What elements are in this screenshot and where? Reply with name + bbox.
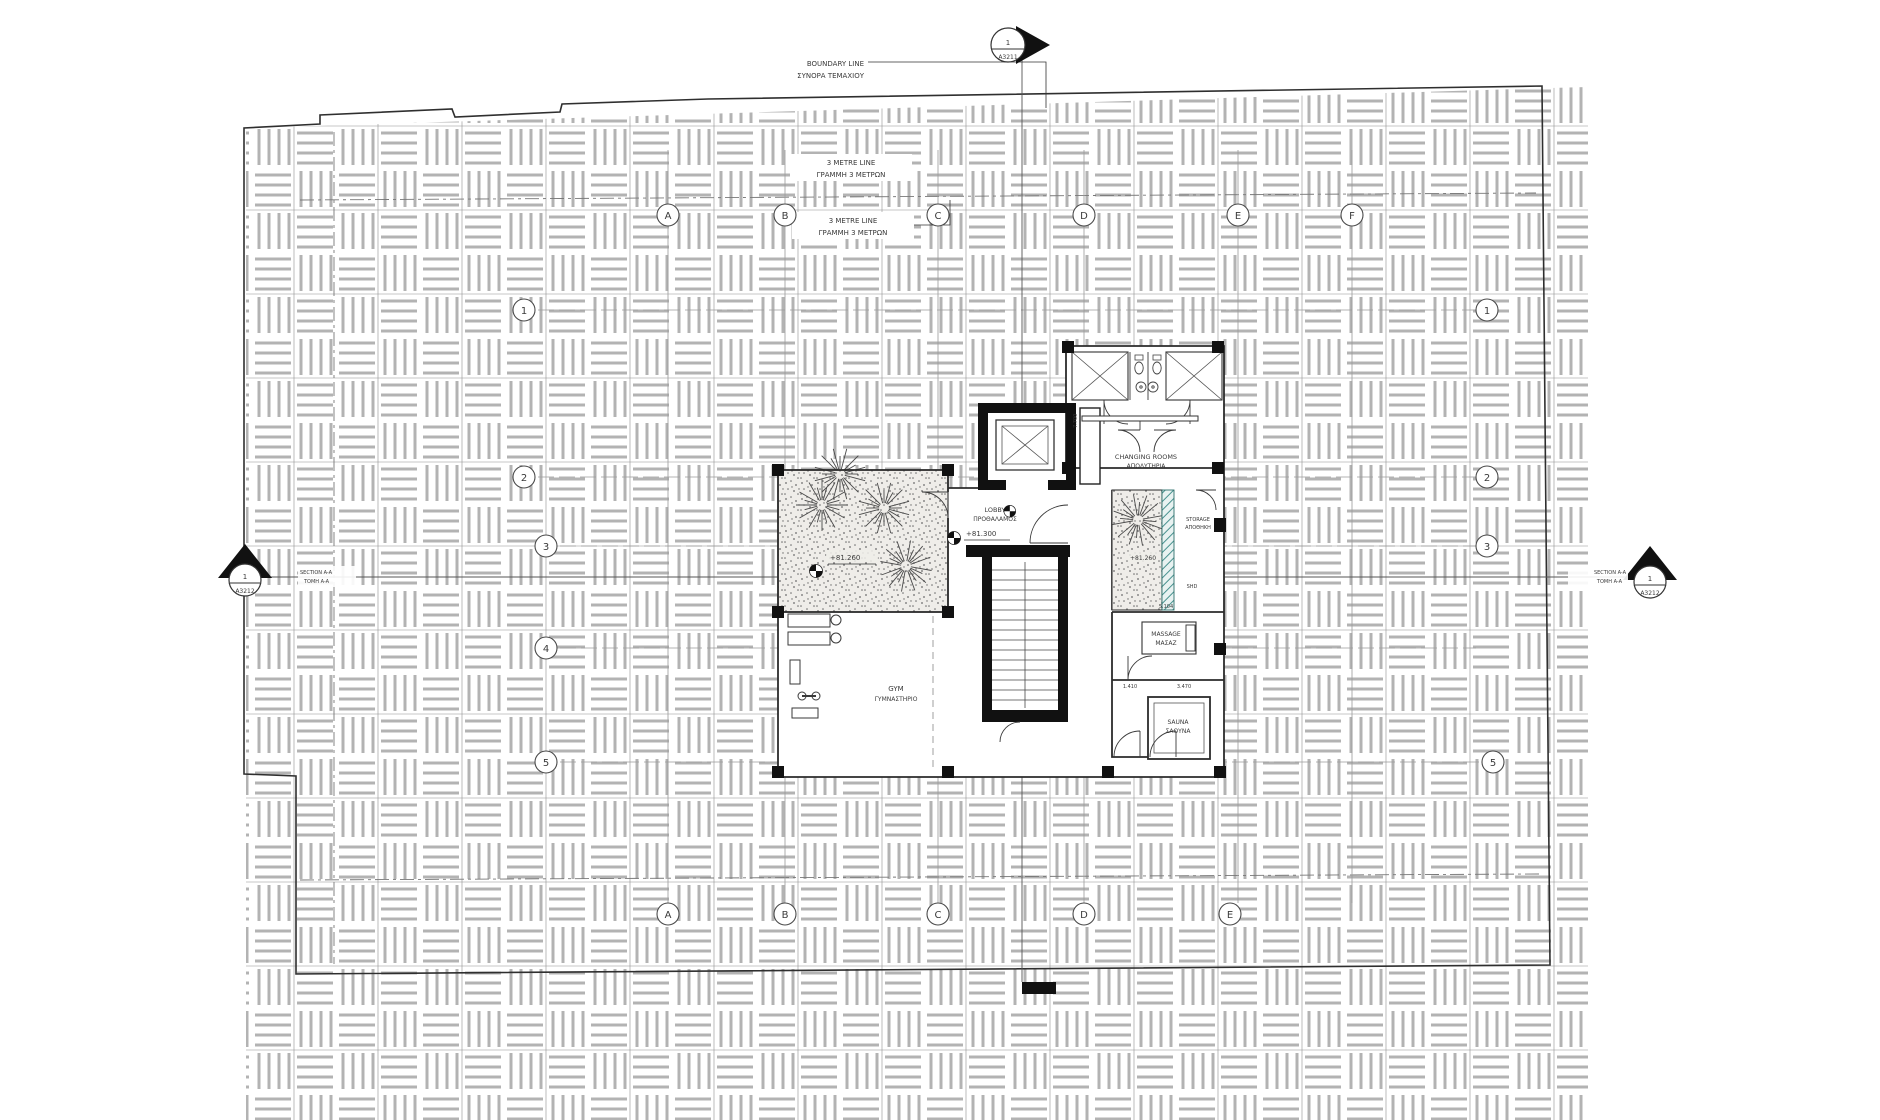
level-marker-icon: [948, 532, 961, 545]
grid-bubble-D-bottom: D: [1073, 903, 1095, 925]
svg-text:5: 5: [543, 758, 549, 769]
floor-plan-svg: BOUNDARY LINE ΣΥΝΟΡΑ ΤΕΜΑΧΙΟΥ 3 METRE LI…: [0, 0, 1880, 1120]
dim-text: 7.700: [1073, 414, 1079, 428]
section-marker-right-sheet: A3212: [1640, 590, 1660, 597]
section-marker-top: 1 A3211: [991, 26, 1050, 64]
dim-text: 5.104: [1159, 604, 1173, 610]
grid-bubble-C-top: C: [927, 204, 949, 226]
grid-bubble-1-right: 1: [1476, 299, 1498, 321]
grid-bubble-3-left: 3: [535, 535, 557, 557]
changing-label-gr: ΑΠΟΔΥΤΗΡΙΑ: [1127, 463, 1167, 470]
grid-bubble-2-left: 2: [513, 466, 535, 488]
grid-bubble-3-right: 3: [1476, 535, 1498, 557]
massage-label-gr: ΜΑΣΑΖ: [1155, 640, 1176, 647]
section-marker-left-sheet: A3212: [235, 588, 255, 595]
planter-level-text: +81.260: [1130, 555, 1156, 562]
svg-text:D: D: [1080, 211, 1088, 222]
section-line-end-bar: [1022, 982, 1056, 994]
boundary-label-gr: ΣΥΝΟΡΑ ΤΕΜΑΧΙΟΥ: [797, 72, 865, 80]
storage-label-en: STORAGE: [1186, 517, 1210, 523]
section-label-left-gr: ΤΟΜΗ A-A: [303, 579, 330, 585]
grid-bubble-E-top: E: [1227, 204, 1249, 226]
section-marker-top-num: 1: [1006, 39, 1010, 47]
terrace-level-text: +81.260: [830, 554, 860, 562]
svg-text:A: A: [665, 211, 672, 222]
svg-text:1: 1: [1484, 306, 1490, 317]
section-marker-right-num: 1: [1648, 575, 1652, 583]
changing-label-en: CHANGING ROOMS: [1115, 453, 1177, 461]
grid-bubble-A-top: A: [657, 204, 679, 226]
svg-text:3: 3: [1484, 542, 1490, 553]
grid-bubble-D-top: D: [1073, 204, 1095, 226]
grid-bubble-1-left: 1: [513, 299, 535, 321]
svg-text:C: C: [935, 910, 942, 921]
grid-bubble-B-top: B: [774, 204, 796, 226]
section-label-right-en: SECTION A-A: [1594, 570, 1627, 576]
svg-text:F: F: [1349, 211, 1355, 222]
massage-label-en: MASSAGE: [1151, 631, 1181, 638]
gym-label-en: GYM: [888, 685, 903, 693]
shd-label: SHD: [1187, 584, 1198, 590]
svg-text:1: 1: [521, 306, 527, 317]
metre-label-1-en: 3 METRE LINE: [827, 159, 876, 167]
svg-text:E: E: [1227, 910, 1233, 921]
metre-label-2-en: 3 METRE LINE: [829, 217, 878, 225]
dim-text: 3.470: [1177, 684, 1191, 690]
section-label-right-gr: ΤΟΜΗ A-A: [1596, 579, 1623, 585]
svg-text:4: 4: [543, 644, 549, 655]
svg-text:C: C: [935, 211, 942, 222]
svg-text:3: 3: [543, 542, 549, 553]
metre-label-1-gr: ΓΡΑΜΜΗ 3 ΜΕΤΡΩΝ: [817, 171, 886, 179]
storage-label-gr: ΑΠΟΘΗΚΗ: [1185, 525, 1211, 531]
lobby-label-en: LOBBY: [984, 506, 1005, 514]
section-marker-left-num: 1: [243, 573, 247, 581]
teal-hatched-wall: [1162, 490, 1174, 610]
section-label-left-en: SECTION A-A: [300, 570, 333, 576]
metre-label-2-gr: ΓΡΑΜΜΗ 3 ΜΕΤΡΩΝ: [819, 229, 888, 237]
gym-label-gr: ΓΥΜΝΑΣΤΗΡΙΟ: [875, 696, 918, 703]
level-marker-icon: [810, 565, 823, 578]
section-marker-top-sheet: A3211: [998, 54, 1018, 61]
dim-text: 1.410: [1123, 684, 1137, 690]
grid-bubble-2-right: 2: [1476, 466, 1498, 488]
grid-bubble-4-left: 4: [535, 637, 557, 659]
grid-bubble-F-top: F: [1341, 204, 1363, 226]
svg-text:A: A: [665, 910, 672, 921]
grid-bubble-E-bottom: E: [1219, 903, 1241, 925]
svg-text:5: 5: [1490, 758, 1496, 769]
sauna-label-en: SAUNA: [1167, 719, 1189, 726]
boundary-label-en: BOUNDARY LINE: [807, 60, 864, 68]
metre-label-1: 3 METRE LINE ΓΡΑΜΜΗ 3 ΜΕΤΡΩΝ: [790, 154, 912, 181]
lobby-level-text: +81.300: [966, 530, 996, 538]
grid-bubble-A-bottom: A: [657, 903, 679, 925]
svg-text:2: 2: [521, 473, 527, 484]
grid-bubble-5-left: 5: [535, 751, 557, 773]
grid-bubble-C-bottom: C: [927, 903, 949, 925]
svg-text:E: E: [1235, 211, 1241, 222]
grid-bubble-5-right: 5: [1482, 751, 1504, 773]
drawing-sheet: BOUNDARY LINE ΣΥΝΟΡΑ ΤΕΜΑΧΙΟΥ 3 METRE LI…: [0, 0, 1880, 1120]
grid-bubble-B-bottom: B: [774, 903, 796, 925]
svg-text:B: B: [782, 910, 789, 921]
svg-text:2: 2: [1484, 473, 1490, 484]
svg-text:D: D: [1080, 910, 1088, 921]
level-marker-icon: [1004, 505, 1016, 517]
svg-text:B: B: [782, 211, 789, 222]
